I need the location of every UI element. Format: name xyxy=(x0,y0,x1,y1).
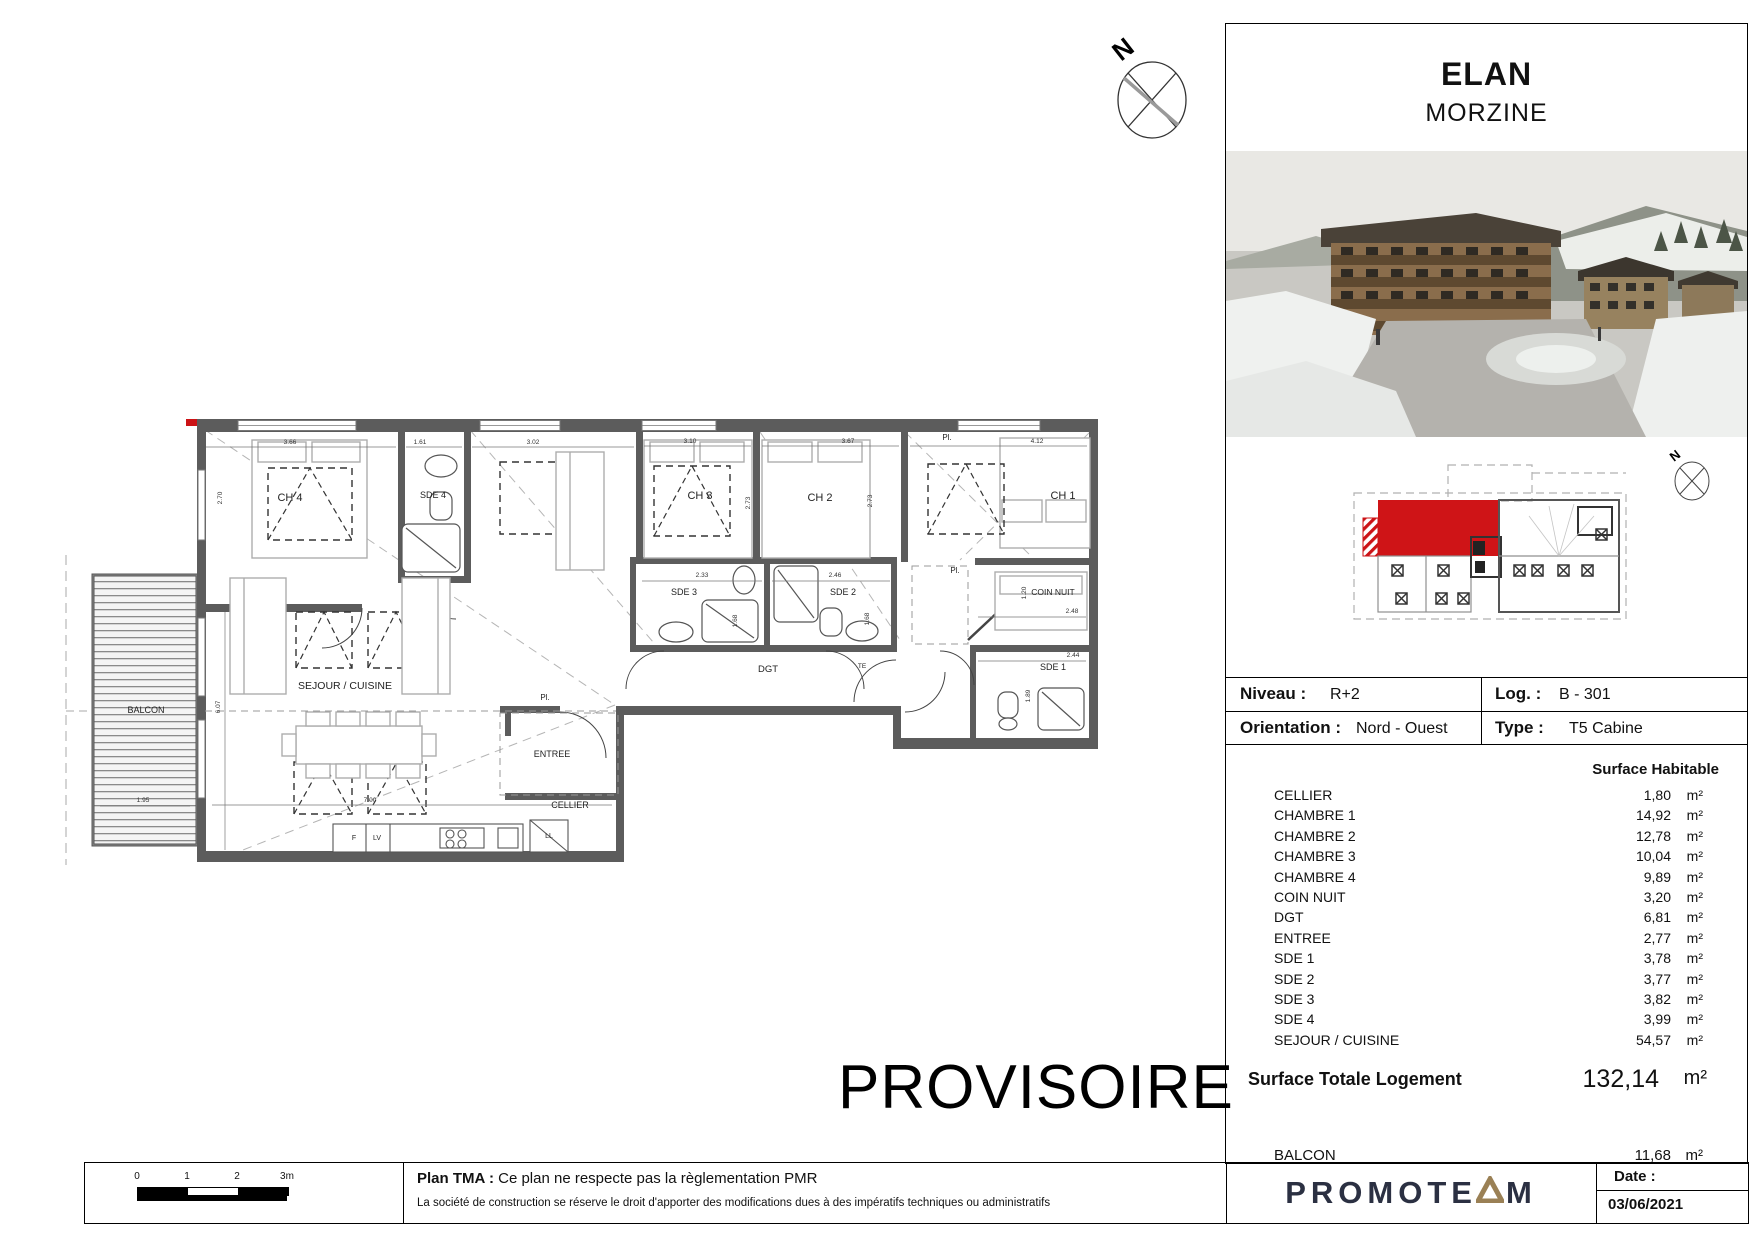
room-label: SEJOUR / CUISINE xyxy=(298,680,392,692)
room-area: 3,82 xyxy=(1601,991,1671,1007)
room-name: COIN NUIT xyxy=(1274,889,1346,905)
dimension-label: 2.46 xyxy=(829,572,842,579)
surface-row: COIN NUIT 3,20 m² xyxy=(1226,887,1747,907)
surface-table: Surface Habitable CELLIER 1,80 m² CHAMBR… xyxy=(1226,743,1747,1163)
niveau-value: R+2 xyxy=(1330,686,1360,704)
surface-row: SDE 3 3,82 m² xyxy=(1226,989,1747,1009)
site-north-compass-icon: N xyxy=(1667,447,1709,500)
room-area: 3,78 xyxy=(1601,950,1671,966)
plan-tma-text: Ce plan ne respecte pas la règlementatio… xyxy=(498,1170,817,1187)
orientation-value: Nord - Ouest xyxy=(1356,720,1448,738)
room-name: SDE 2 xyxy=(1274,971,1314,987)
dimension-label: 1.95 xyxy=(137,797,150,804)
room-label: CH 2 xyxy=(807,492,832,504)
surface-row: ENTREE 2,77 m² xyxy=(1226,928,1747,948)
room-label: CELLIER xyxy=(551,800,589,810)
room-label: Pl. xyxy=(540,693,549,702)
room-name: CHAMBRE 2 xyxy=(1274,828,1356,844)
dimension-label: 1.61 xyxy=(414,439,427,446)
room-name: CELLIER xyxy=(1274,787,1332,803)
dimension-label: 2.70 xyxy=(217,491,224,504)
scale-bar-cell: 0123m xyxy=(85,1163,403,1223)
area-unit: m² xyxy=(1687,807,1703,823)
dimension-label: 1.68 xyxy=(864,612,871,625)
scale-tick-label: 1 xyxy=(184,1171,190,1182)
site-keyplan: N xyxy=(1226,437,1747,677)
area-unit: m² xyxy=(1687,991,1703,1007)
date-cell: Date : 03/06/2021 xyxy=(1596,1163,1748,1223)
brand-suffix: M xyxy=(1506,1175,1537,1211)
room-label: Pl. xyxy=(942,433,951,442)
room-name: SDE 3 xyxy=(1274,991,1314,1007)
type-label: Type : xyxy=(1495,718,1544,738)
total-label: Surface Totale Logement xyxy=(1248,1069,1462,1090)
surface-row: CELLIER 1,80 m² xyxy=(1226,785,1747,805)
north-compass-icon: N xyxy=(1106,32,1186,138)
room-area: 10,04 xyxy=(1601,848,1671,864)
room-name: ENTREE xyxy=(1274,930,1331,946)
room-area: 1,80 xyxy=(1601,787,1671,803)
scale-tick-label: 3m xyxy=(280,1171,294,1182)
room-label: Pl. xyxy=(950,566,959,575)
niveau-label: Niveau : xyxy=(1240,684,1306,704)
room-label: LL xyxy=(545,833,553,840)
surface-row: DGT 6,81 m² xyxy=(1226,907,1747,927)
room-label: SDE 3 xyxy=(671,587,697,597)
room-area: 14,92 xyxy=(1601,807,1671,823)
dimension-label: 2.73 xyxy=(867,494,874,507)
dimension-label: 3.02 xyxy=(527,439,540,446)
scale-tick-label: 2 xyxy=(234,1171,240,1182)
room-label: BALCON xyxy=(127,705,164,715)
orientation-label: Orientation : xyxy=(1240,718,1341,738)
room-area: 2,77 xyxy=(1601,930,1671,946)
disclaimer-text: La société de construction se réserve le… xyxy=(417,1197,1050,1209)
area-unit: m² xyxy=(1687,889,1703,905)
total-surface-row: Surface Totale Logement 132,14 m² xyxy=(1226,1065,1747,1099)
plan-tma-note: Plan TMA : Ce plan ne respecte pas la rè… xyxy=(417,1170,817,1187)
total-value: 132,14 xyxy=(1583,1065,1659,1094)
total-unit: m² xyxy=(1684,1067,1707,1090)
room-name: SDE 4 xyxy=(1274,1011,1314,1027)
plan-tma-label: Plan TMA : xyxy=(417,1170,494,1187)
room-label: SDE 1 xyxy=(1040,662,1066,672)
room-label: COIN NUIT xyxy=(1031,587,1074,597)
dimension-label: 3.10 xyxy=(684,438,697,445)
kitchen xyxy=(333,820,568,852)
room-label: F xyxy=(352,835,356,842)
room-label: LV xyxy=(373,835,381,842)
scale-tick-label: 0 xyxy=(134,1171,140,1182)
room-area: 6,81 xyxy=(1601,909,1671,925)
area-unit: m² xyxy=(1687,869,1703,885)
brand-prefix: PROMOTE xyxy=(1285,1175,1477,1211)
plan-sheet: N xyxy=(0,0,1753,1240)
area-unit: m² xyxy=(1687,787,1703,803)
room-name: SEJOUR / CUISINE xyxy=(1274,1032,1399,1048)
room-name: DGT xyxy=(1274,909,1304,925)
room-name: SDE 1 xyxy=(1274,950,1314,966)
room-name: CHAMBRE 3 xyxy=(1274,848,1356,864)
plan-tma-cell: Plan TMA : Ce plan ne respecte pas la rè… xyxy=(403,1163,1226,1223)
dimension-label: 2.73 xyxy=(745,496,752,509)
dimension-label: 6.07 xyxy=(215,700,222,713)
dimension-label: 2.44 xyxy=(1067,652,1080,659)
room-label: SDE 2 xyxy=(830,587,856,597)
area-unit: m² xyxy=(1687,1032,1703,1048)
dimension-label: 3.67 xyxy=(842,438,855,445)
dimension-label: 4.12 xyxy=(1031,438,1044,445)
room-label: DGT xyxy=(758,664,778,675)
dimension-label: 7.00 xyxy=(364,797,377,804)
site-north-letter: N xyxy=(1667,447,1684,465)
area-unit: m² xyxy=(1687,930,1703,946)
unit-info-table: Niveau : R+2 Log. : B - 301 Orientation … xyxy=(1226,677,1747,745)
project-photo xyxy=(1226,151,1747,437)
surface-rows: CELLIER 1,80 m² CHAMBRE 1 14,92 m² CHAMB… xyxy=(1226,785,1747,1050)
north-letter: N xyxy=(1106,32,1139,67)
surface-row: SDE 2 3,77 m² xyxy=(1226,969,1747,989)
dimension-label: 2.48 xyxy=(1066,608,1079,615)
date-label: Date : xyxy=(1614,1168,1656,1185)
room-label: CH 1 xyxy=(1050,490,1075,502)
room-label: CH 4 xyxy=(277,492,302,504)
promoteam-logo: PROMOTE M xyxy=(1285,1175,1537,1211)
room-label: SDE 4 xyxy=(420,490,446,500)
room-area: 54,57 xyxy=(1601,1032,1671,1048)
surface-row: SEJOUR / CUISINE 54,57 m² xyxy=(1226,1030,1747,1050)
room-label: ENTREE xyxy=(534,749,571,759)
footer-bar: 0123m Plan TMA : Ce plan ne respecte pas… xyxy=(84,1162,1749,1224)
room-area: 12,78 xyxy=(1601,828,1671,844)
room-area: 3,99 xyxy=(1601,1011,1671,1027)
room-name: CHAMBRE 4 xyxy=(1274,869,1356,885)
area-unit: m² xyxy=(1687,909,1703,925)
date-value: 03/06/2021 xyxy=(1608,1196,1683,1213)
room-area: 9,89 xyxy=(1601,869,1671,885)
project-name: ELAN xyxy=(1226,56,1747,93)
type-value: T5 Cabine xyxy=(1569,720,1643,738)
provisoire-watermark: PROVISOIRE xyxy=(838,1052,1208,1123)
surface-row: SDE 4 3,99 m² xyxy=(1226,1009,1747,1029)
room-name: CHAMBRE 1 xyxy=(1274,807,1356,823)
project-title-block: ELAN MORZINE xyxy=(1226,24,1747,151)
room-area: 3,20 xyxy=(1601,889,1671,905)
room-label: CH 3 xyxy=(687,490,712,502)
surface-row: CHAMBRE 4 9,89 m² xyxy=(1226,867,1747,887)
area-unit: m² xyxy=(1687,848,1703,864)
room-label: TE xyxy=(858,663,867,670)
dimension-label: 1.89 xyxy=(1025,689,1032,702)
project-location: MORZINE xyxy=(1226,99,1747,128)
scale-bar xyxy=(137,1187,289,1196)
brand-cell: PROMOTE M xyxy=(1226,1163,1596,1223)
area-unit: m² xyxy=(1687,1011,1703,1027)
area-unit: m² xyxy=(1687,828,1703,844)
area-unit: m² xyxy=(1687,971,1703,987)
log-label: Log. : xyxy=(1495,684,1541,704)
surface-row: CHAMBRE 1 14,92 m² xyxy=(1226,805,1747,825)
surface-header: Surface Habitable xyxy=(1592,761,1719,778)
log-value: B - 301 xyxy=(1559,686,1611,704)
surface-row: CHAMBRE 3 10,04 m² xyxy=(1226,846,1747,866)
dimension-label: 1.68 xyxy=(732,614,739,627)
dimension-label: 2.33 xyxy=(696,572,709,579)
balcony xyxy=(93,419,202,845)
room-area: 3,77 xyxy=(1601,971,1671,987)
title-panel: ELAN MORZINE xyxy=(1225,23,1748,1164)
dimension-label: 1.20 xyxy=(1021,586,1028,599)
dimension-label: 3.66 xyxy=(284,439,297,446)
surface-row: CHAMBRE 2 12,78 m² xyxy=(1226,826,1747,846)
area-unit: m² xyxy=(1687,950,1703,966)
brand-triangle-icon xyxy=(1476,1175,1504,1211)
surface-row: SDE 1 3,78 m² xyxy=(1226,948,1747,968)
